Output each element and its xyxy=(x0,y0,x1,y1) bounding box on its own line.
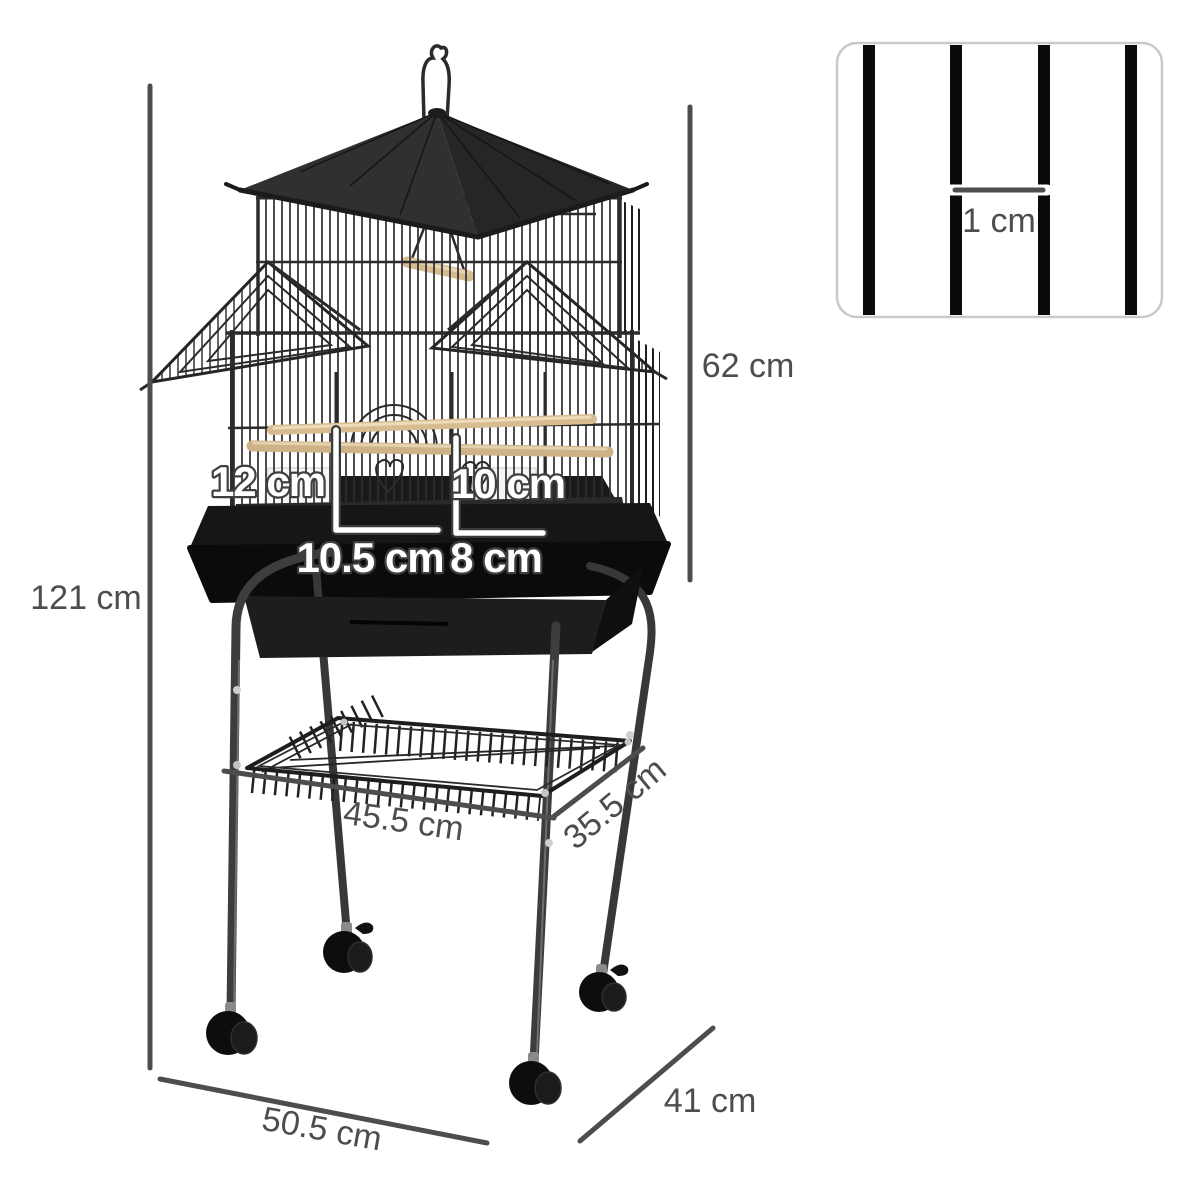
right-door-height-label: 10 cm xyxy=(451,460,565,507)
overall-height-label: 121 cm xyxy=(30,579,142,617)
diagram-canvas: 121 cm 62 cm 50.5 cm 41 cm 45.5 cm 35.5 … xyxy=(0,0,1200,1200)
wheel-front-left xyxy=(206,1002,257,1055)
left-door-width-label: 10.5 cm xyxy=(296,534,443,581)
product-dimension-diagram: 121 cm 62 cm 50.5 cm 41 cm 45.5 cm 35.5 … xyxy=(0,0,1200,1200)
inset-border xyxy=(837,43,1162,317)
bar-spacing-inset: 1 cm xyxy=(837,43,1162,317)
base-depth-label: 41 cm xyxy=(664,1082,757,1120)
right-door-width-label: 8 cm xyxy=(450,534,542,581)
shelf-basket xyxy=(233,702,632,808)
wheel-back-right xyxy=(579,964,628,1012)
wheel-back-left xyxy=(323,922,373,973)
left-door-height-label: 12 cm xyxy=(211,458,325,505)
caster-wheels xyxy=(206,922,628,1105)
wheel-front-right xyxy=(509,1052,561,1105)
cage-height-label: 62 cm xyxy=(702,347,795,385)
bar-spacing-label: 1 cm xyxy=(962,202,1036,240)
